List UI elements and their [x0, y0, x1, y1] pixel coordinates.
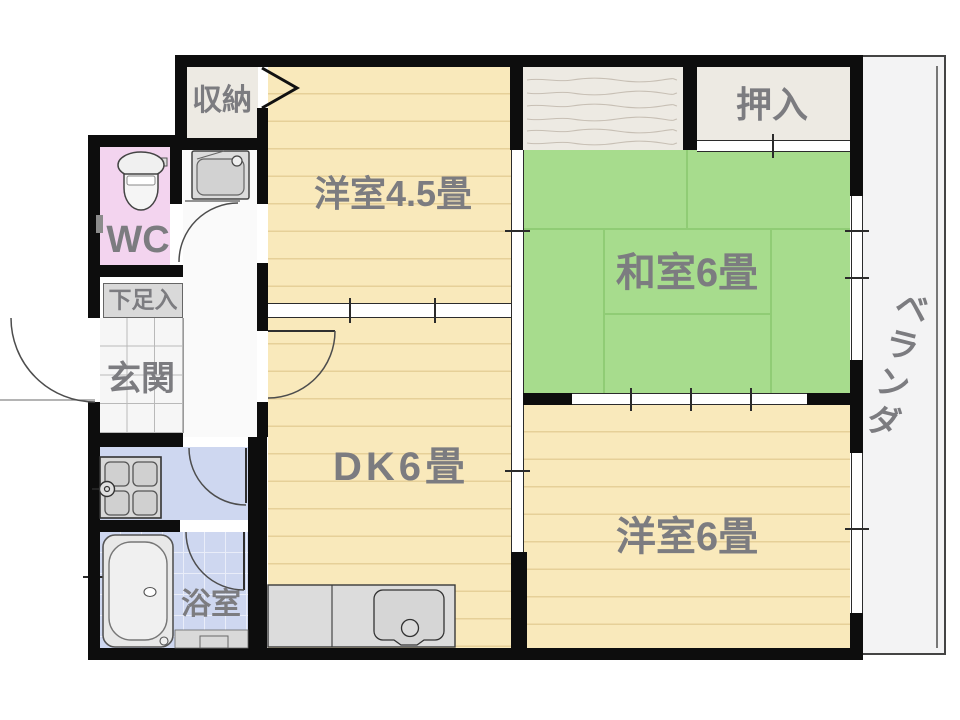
track-tick	[349, 298, 351, 323]
sliding-door-center	[511, 150, 524, 552]
label-shoe-cabinet: 下足入	[109, 289, 178, 312]
track-tick	[690, 388, 692, 411]
label-western-room-45: 洋室4.5畳	[314, 176, 472, 212]
label-bathroom: 浴室	[181, 590, 241, 620]
wall	[88, 520, 180, 532]
wall	[88, 135, 100, 277]
label-western-room-6: 洋室6畳	[616, 517, 758, 557]
track-tick	[434, 298, 436, 323]
tatami-line	[770, 228, 772, 393]
wall	[88, 265, 183, 277]
tatami-line	[603, 228, 605, 393]
sliding-door-dk-west45	[268, 303, 512, 318]
track-tick	[772, 134, 774, 158]
wall	[170, 147, 182, 204]
wall	[511, 552, 527, 660]
hallway	[183, 150, 257, 437]
window-western-room-6	[851, 453, 863, 613]
label-entrance: 玄関	[107, 362, 175, 396]
label-closet-oshiire: 押入	[736, 87, 808, 123]
wall	[88, 135, 183, 147]
wall	[88, 433, 183, 447]
wall	[523, 393, 572, 405]
wall	[257, 108, 268, 204]
window-wc	[96, 215, 103, 233]
wall	[248, 437, 267, 660]
wall	[850, 613, 863, 660]
label-wc: WC	[106, 221, 169, 259]
tatami-line	[686, 150, 688, 230]
label-storage: 収納	[192, 86, 252, 116]
entrance-door-arc	[0, 318, 95, 402]
wall	[850, 360, 863, 453]
room-kitchen	[100, 447, 248, 520]
wall	[88, 277, 100, 318]
wall	[510, 55, 523, 150]
balcony-inner-line	[936, 66, 938, 648]
wall	[807, 393, 850, 405]
entrance-step-edge	[183, 318, 184, 433]
window-tick	[845, 528, 869, 530]
wall	[257, 402, 268, 437]
wall	[850, 55, 863, 196]
wall	[88, 648, 863, 660]
label-dining-kitchen: DK6畳	[333, 447, 469, 487]
wall	[683, 55, 697, 150]
room-wood-alcove	[523, 67, 683, 150]
wall	[172, 138, 258, 150]
tatami-line	[603, 313, 772, 315]
label-japanese-room: 和室6畳	[616, 253, 758, 293]
track-tick	[630, 388, 632, 411]
track-tick	[750, 388, 752, 411]
window-tick	[845, 277, 869, 279]
track-tick	[505, 230, 530, 232]
wall	[257, 263, 268, 331]
window-tick	[845, 230, 869, 232]
track-tick	[505, 470, 530, 472]
floor-plan: 収納 洋室4.5畳 押入 和室6畳 ベランダ WC 下足入 玄関 DK6畳 洋室…	[0, 0, 960, 720]
